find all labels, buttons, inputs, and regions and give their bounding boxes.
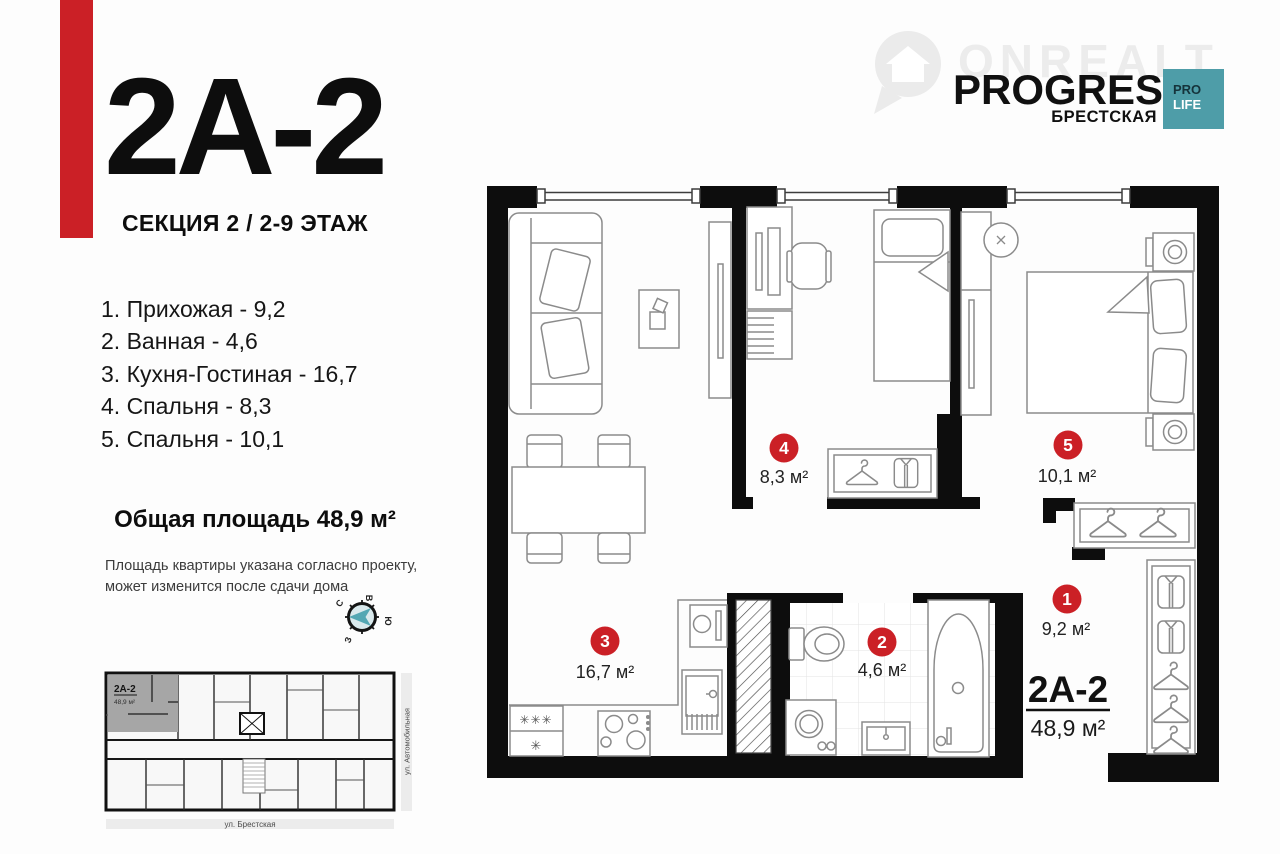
mini-unit-area: 48,9 м²: [114, 699, 136, 706]
room-area-label-2: 4,6 м²: [858, 660, 906, 680]
svg-text:5: 5: [1063, 435, 1073, 455]
room-list-item: 1. Прихожая - 9,2: [101, 293, 358, 325]
elevator: [240, 713, 264, 734]
section-subtitle: СЕКЦИЯ 2 / 2-9 ЭТАЖ: [122, 210, 368, 237]
logo-subtitle: БРЕСТСКАЯ: [953, 108, 1157, 127]
room-badge-4: 4 8,3 м²: [760, 434, 808, 488]
listing-floorplan-poster: 2A-2 СЕКЦИЯ 2 / 2-9 ЭТАЖ 1. Прихожая - 9…: [0, 0, 1280, 854]
room-badge-1: 1 9,2 м²: [1042, 585, 1090, 640]
vent-shaft: [736, 600, 771, 753]
disclaimer-text: Площадь квартиры указана согласно проект…: [105, 556, 417, 597]
pro-life-badge: PRO LIFE: [1163, 69, 1224, 129]
cooktop: [598, 711, 650, 756]
ceiling-light: [984, 223, 1018, 257]
total-area-heading: Общая площадь 48,9 м²: [60, 506, 450, 534]
street-label-bottom: ул. Брестская: [224, 820, 275, 829]
nightstand-bottom: [1146, 414, 1194, 450]
svg-text:1: 1: [1062, 589, 1072, 609]
badge-line-pro: PRO: [1173, 82, 1224, 97]
svg-text:2: 2: [877, 632, 887, 652]
room-list-item: 2. Ванная - 4,6: [101, 325, 358, 357]
toilet: [789, 627, 844, 661]
room-list: 1. Прихожая - 9,2 2. Ванная - 4,6 3. Кух…: [101, 293, 358, 455]
single-bed: [874, 210, 950, 381]
street-label-right: ул. Автомобильная: [403, 708, 412, 775]
bathtub: [928, 600, 989, 757]
dining-set: [512, 435, 645, 563]
room-area-label-3: 16,7 м²: [576, 662, 634, 682]
compass-letter-left: С: [335, 597, 346, 608]
svg-text:4: 4: [779, 438, 789, 458]
nightstand-top: [1146, 233, 1194, 271]
desk: [747, 207, 792, 309]
stairs: [243, 759, 265, 793]
compass-letter-bottom: З: [343, 635, 354, 644]
mini-unit-highlight: 2A-2 48,9 м²: [108, 675, 178, 732]
mini-building-plan: 2A-2 48,9 м² ул. Брестская ул. Автомобил…: [95, 665, 425, 850]
unit-area-label: 48,9 м²: [1031, 715, 1106, 741]
unit-code-label: 2A-2: [1028, 669, 1108, 710]
windows: [537, 189, 1130, 203]
desk-chair: [787, 243, 831, 289]
room-area-label-1: 9,2 м²: [1042, 619, 1090, 639]
red-accent-bar: [60, 0, 93, 238]
mini-unit-code: 2A-2: [114, 684, 136, 695]
sofa: [509, 213, 602, 414]
room-area-label-5: 10,1 м²: [1038, 466, 1096, 486]
closet-bedroom4: [828, 449, 937, 498]
room-area-label-4: 8,3 м²: [760, 467, 808, 487]
floor-plan: ✳✳✳ ✳ 1 9,2 м² 2 4,6 м² 3 16,7 м² 4: [480, 170, 1230, 810]
coffee-table: [639, 290, 679, 348]
watermark-pin-icon: [866, 26, 950, 118]
bookshelf: [747, 311, 792, 359]
kitchen-sink: [682, 605, 727, 734]
compass-letter-right: Ю: [383, 616, 393, 625]
hallway-wardrobe: [1147, 560, 1195, 754]
svg-text:✳: ✳: [531, 738, 542, 753]
room-badge-3: 3 16,7 м²: [576, 627, 634, 683]
washing-machine: [786, 700, 836, 755]
svg-text:✳✳✳: ✳✳✳: [519, 713, 552, 727]
badge-line-life: LIFE: [1173, 97, 1224, 112]
bathroom-sink: [862, 722, 910, 755]
apartment-title: 2A-2: [104, 58, 383, 196]
logo-title: PROGRESS: [953, 66, 1191, 114]
unit-label: 2A-2 48,9 м²: [1026, 669, 1110, 741]
room-list-item: 3. Кухня-Гостиная - 16,7: [101, 358, 358, 390]
room-badge-5: 5 10,1 м²: [1038, 431, 1096, 487]
double-bed: [1027, 272, 1193, 413]
disclaimer-line: Площадь квартиры указана согласно проект…: [105, 556, 417, 577]
compass-letter-top: В: [364, 595, 374, 602]
tv-unit: [709, 222, 731, 398]
room-list-item: 5. Спальня - 10,1: [101, 423, 358, 455]
room-list-item: 4. Спальня - 8,3: [101, 390, 358, 422]
closet-bedroom5: [1074, 503, 1195, 548]
svg-text:3: 3: [600, 631, 610, 651]
compass-icon: В Ю З С: [335, 592, 395, 646]
